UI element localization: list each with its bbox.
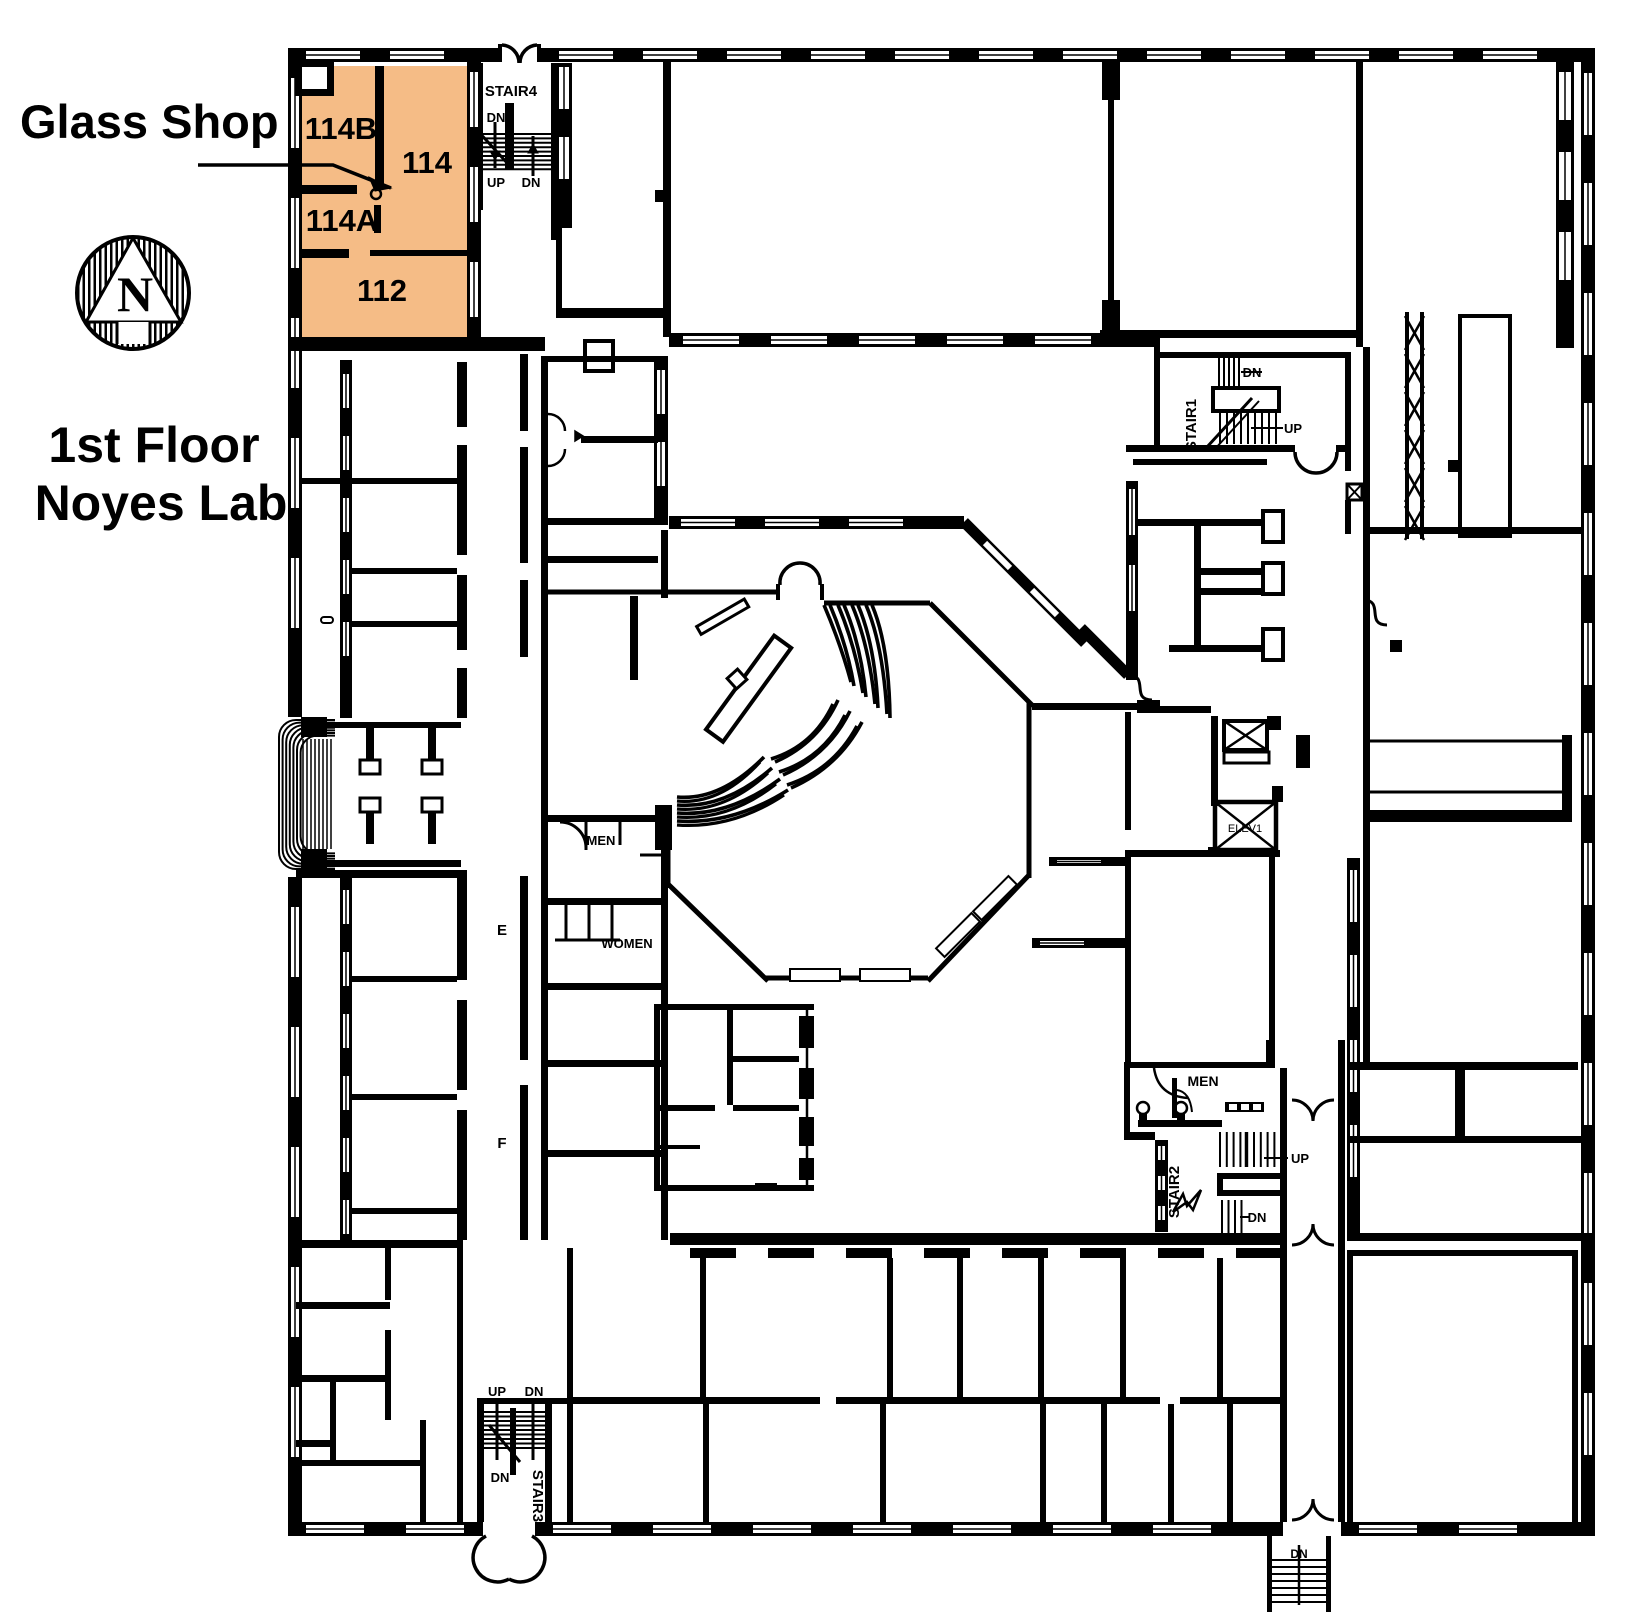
svg-text:112: 112 <box>357 273 407 308</box>
svg-text:DN: DN <box>491 1470 510 1485</box>
svg-text:MEN: MEN <box>1187 1073 1218 1089</box>
svg-text:STAIR3: STAIR3 <box>529 1470 546 1522</box>
svg-text:STAIR2: STAIR2 <box>1166 1166 1183 1218</box>
svg-text:DN: DN <box>1243 365 1262 380</box>
svg-text:DN: DN <box>525 1384 544 1399</box>
svg-text:DN: DN <box>1290 1547 1307 1561</box>
svg-text:E: E <box>497 922 507 939</box>
svg-text:114: 114 <box>402 145 453 180</box>
svg-text:UP: UP <box>488 1384 506 1399</box>
svg-text:STAIR1: STAIR1 <box>1183 399 1200 451</box>
svg-text:DN: DN <box>487 110 506 125</box>
svg-text:UP: UP <box>1291 1151 1309 1166</box>
svg-text:UP: UP <box>487 175 505 190</box>
svg-text:UP: UP <box>1284 421 1302 436</box>
svg-text:MEN: MEN <box>587 833 616 848</box>
svg-text:F: F <box>497 1135 506 1152</box>
svg-text:WOMEN: WOMEN <box>601 936 652 951</box>
svg-text:ELEV1: ELEV1 <box>1228 823 1262 835</box>
svg-text:1st Floor: 1st Floor <box>48 417 259 473</box>
svg-text:Glass Shop: Glass Shop <box>20 95 279 148</box>
svg-text:DN: DN <box>1248 1210 1267 1225</box>
svg-text:STAIR4: STAIR4 <box>485 83 538 100</box>
svg-text:DN: DN <box>522 175 541 190</box>
svg-text:114B: 114B <box>305 111 377 146</box>
svg-text:N: N <box>117 266 153 322</box>
svg-text:114A: 114A <box>306 203 378 238</box>
svg-text:Noyes Lab: Noyes Lab <box>35 475 288 531</box>
